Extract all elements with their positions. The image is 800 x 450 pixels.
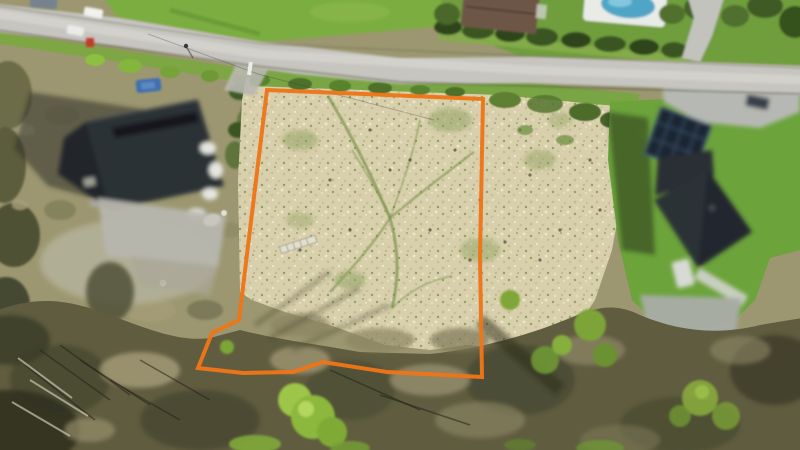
red-object xyxy=(86,38,94,47)
blue-car-roof xyxy=(141,81,156,89)
tree-blob xyxy=(434,3,460,25)
aerial-photo-canvas xyxy=(0,0,800,450)
white-debris xyxy=(221,210,227,216)
pedestrian-on-road xyxy=(184,44,188,48)
aerial-photo xyxy=(0,0,800,450)
